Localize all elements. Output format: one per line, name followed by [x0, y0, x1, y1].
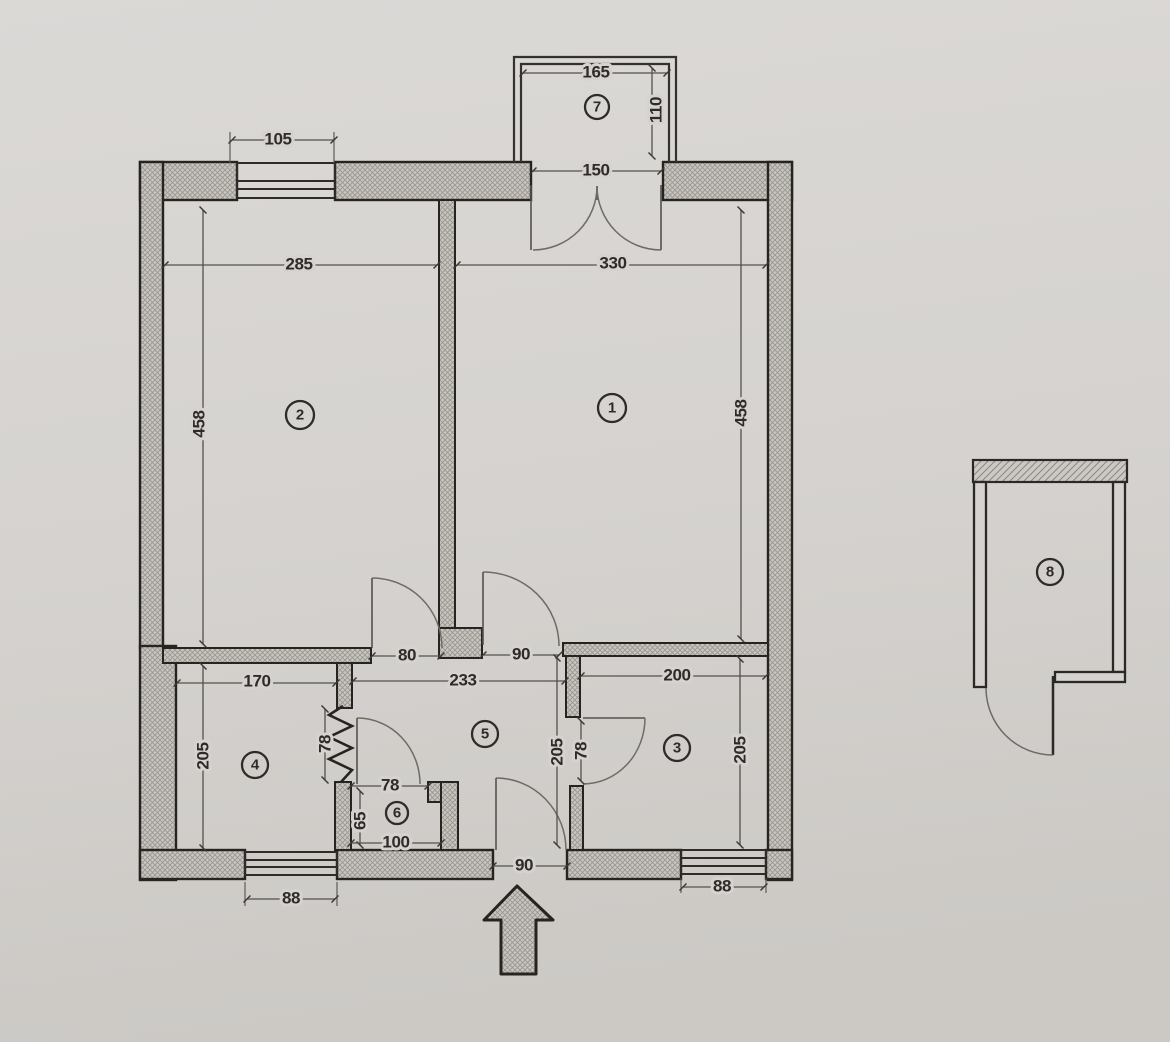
dim-hall-width: 233 — [449, 671, 476, 690]
wall-left-upper — [140, 162, 163, 648]
wall-room4-right-upper — [337, 663, 352, 708]
dim-balcony-door: 150 — [582, 161, 609, 180]
dim-door-room2: 80 — [398, 646, 416, 665]
room-label-8: 8 — [1046, 564, 1054, 581]
dim-room6-depth: 65 — [351, 812, 370, 830]
wall-right — [768, 162, 792, 880]
annex-top-wall — [973, 460, 1127, 482]
room-label-7: 7 — [593, 99, 601, 116]
room-label-3: 3 — [673, 740, 681, 757]
dim-balcony-depth: 110 — [647, 97, 666, 123]
dim-room3-height: 205 — [731, 736, 750, 763]
wall-room3-left-lower — [570, 786, 583, 850]
room-label-1: 1 — [608, 400, 616, 417]
dim-balcony-width: 165 — [582, 63, 609, 82]
dim-room4-height: 205 — [194, 742, 213, 769]
room-label-5: 5 — [481, 726, 489, 743]
dim-room2-width: 285 — [285, 255, 312, 274]
dim-window-right: 88 — [713, 877, 731, 896]
wall-room1-room3 — [563, 643, 768, 656]
wall-room3-left-upper — [566, 656, 580, 717]
wall-bottom-left-segment — [140, 850, 245, 879]
dim-entry-door: 90 — [515, 856, 533, 875]
wall-bottom-corner-segment — [766, 850, 792, 879]
wall-bottom-entry-segment — [337, 850, 493, 879]
dim-room2-height: 458 — [190, 410, 209, 437]
annex-left-wall — [974, 482, 986, 687]
dim-room6-width: 100 — [382, 833, 409, 852]
dim-door-room1: 90 — [512, 645, 530, 664]
room-label-6: 6 — [393, 805, 401, 822]
floor-plan-canvas: 105 165 110 150 285 330 458 458 80 90 23… — [0, 0, 1170, 1042]
floor-plan-page: 105 165 110 150 285 330 458 458 80 90 23… — [0, 0, 1170, 1042]
room-label-2: 2 — [296, 407, 304, 424]
dim-room4-pass: 78 — [316, 735, 335, 753]
wall-room4-right-lower — [335, 782, 351, 850]
dim-room3-door: 78 — [572, 742, 591, 760]
dim-room4-width: 170 — [243, 672, 270, 691]
dim-window-left: 88 — [282, 889, 300, 908]
paper-background — [0, 0, 1170, 1042]
wall-room6-right — [441, 782, 458, 850]
dim-top-window: 105 — [264, 130, 291, 149]
wall-room2-room4 — [163, 648, 371, 663]
dim-room3-width: 200 — [663, 666, 690, 685]
wall-bottom-right-segment — [567, 850, 681, 879]
annex-bottom-wall — [1055, 672, 1125, 682]
dim-room1-height: 458 — [732, 399, 751, 426]
dim-room1-width: 330 — [599, 254, 626, 273]
wall-top-middle-segment — [335, 162, 531, 200]
dim-hall-height: 205 — [548, 738, 567, 765]
wall-stub-hall — [439, 628, 482, 658]
annex-right-wall — [1113, 482, 1125, 672]
room-label-4: 4 — [251, 757, 260, 774]
dim-room6-door: 78 — [381, 776, 399, 795]
wall-between-room1-room2 — [439, 200, 455, 630]
wall-left-lower — [140, 646, 176, 880]
